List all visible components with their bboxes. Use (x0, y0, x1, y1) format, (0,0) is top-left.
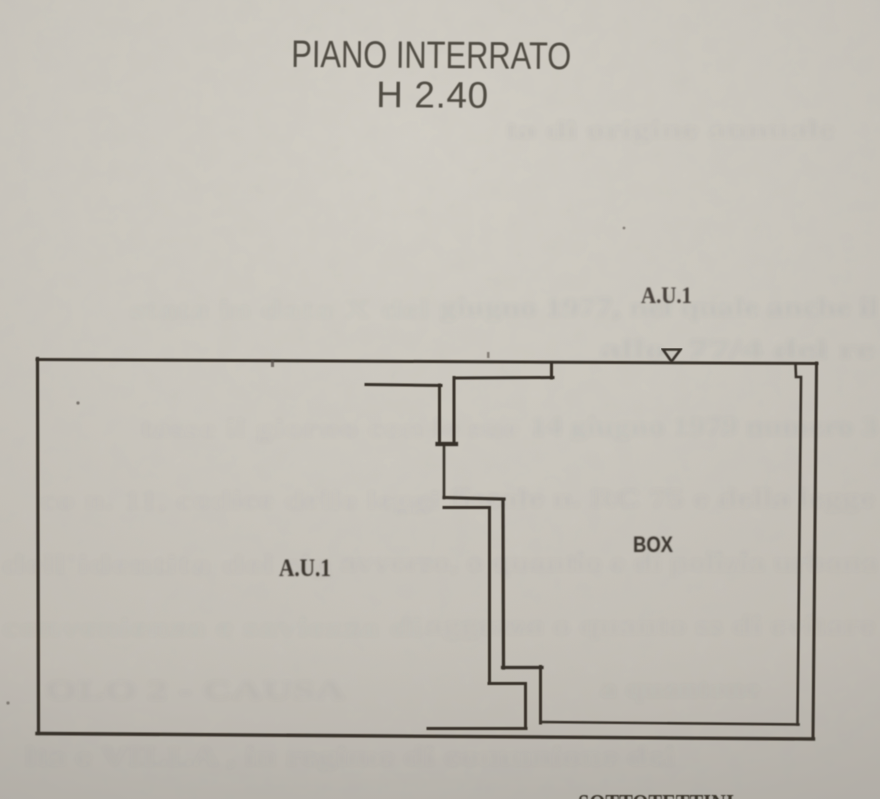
svg-text:A.U.1: A.U.1 (279, 555, 331, 582)
svg-text:14 giugno 1979 numero 3: 14 giugno 1979 numero 3 (530, 412, 878, 441)
svg-text:H 2.40: H 2.40 (376, 74, 489, 116)
svg-text:fiscale n. RC 75 e della legge: fiscale n. RC 75 e della legge (450, 484, 875, 513)
svg-text:lta e VILLA , in regime di com: lta e VILLA , in regime di comunione dei (25, 742, 675, 771)
svg-text:tasse il giorno con le sue: tasse il giorno con le sue (140, 414, 520, 443)
svg-text:stata in data X del: stata in data X del (130, 295, 430, 324)
svg-text:SOTTOTETTINI: SOTTOTETTINI (578, 791, 734, 799)
svg-text:co n. 11, codice delle leggi: co n. 11, codice delle leggi (40, 486, 440, 515)
svg-text:PIANO INTERRATO: PIANO INTERRATO (291, 34, 571, 78)
svg-text:allo. 77/4 del re: allo. 77/4 del re (600, 335, 875, 364)
svg-text:a quantone: a quantone (600, 674, 760, 703)
svg-text:aggezza o quanto ss di evitare: aggezza o quanto ss di evitare (425, 611, 875, 640)
svg-text:BOX: BOX (633, 532, 673, 557)
svg-text:OLO 2 - CAUSA: OLO 2 - CAUSA (45, 676, 345, 705)
svg-text:avverso, o quantio e di polizi: avverso, o quantio e di polizia urbana (340, 548, 878, 577)
svg-text:ta di origine annuale: ta di origine annuale (505, 117, 835, 144)
svg-text:convenienza e saviezza di: convenienza e saviezza di (2, 613, 422, 642)
svg-text:A.U.1: A.U.1 (641, 283, 692, 308)
